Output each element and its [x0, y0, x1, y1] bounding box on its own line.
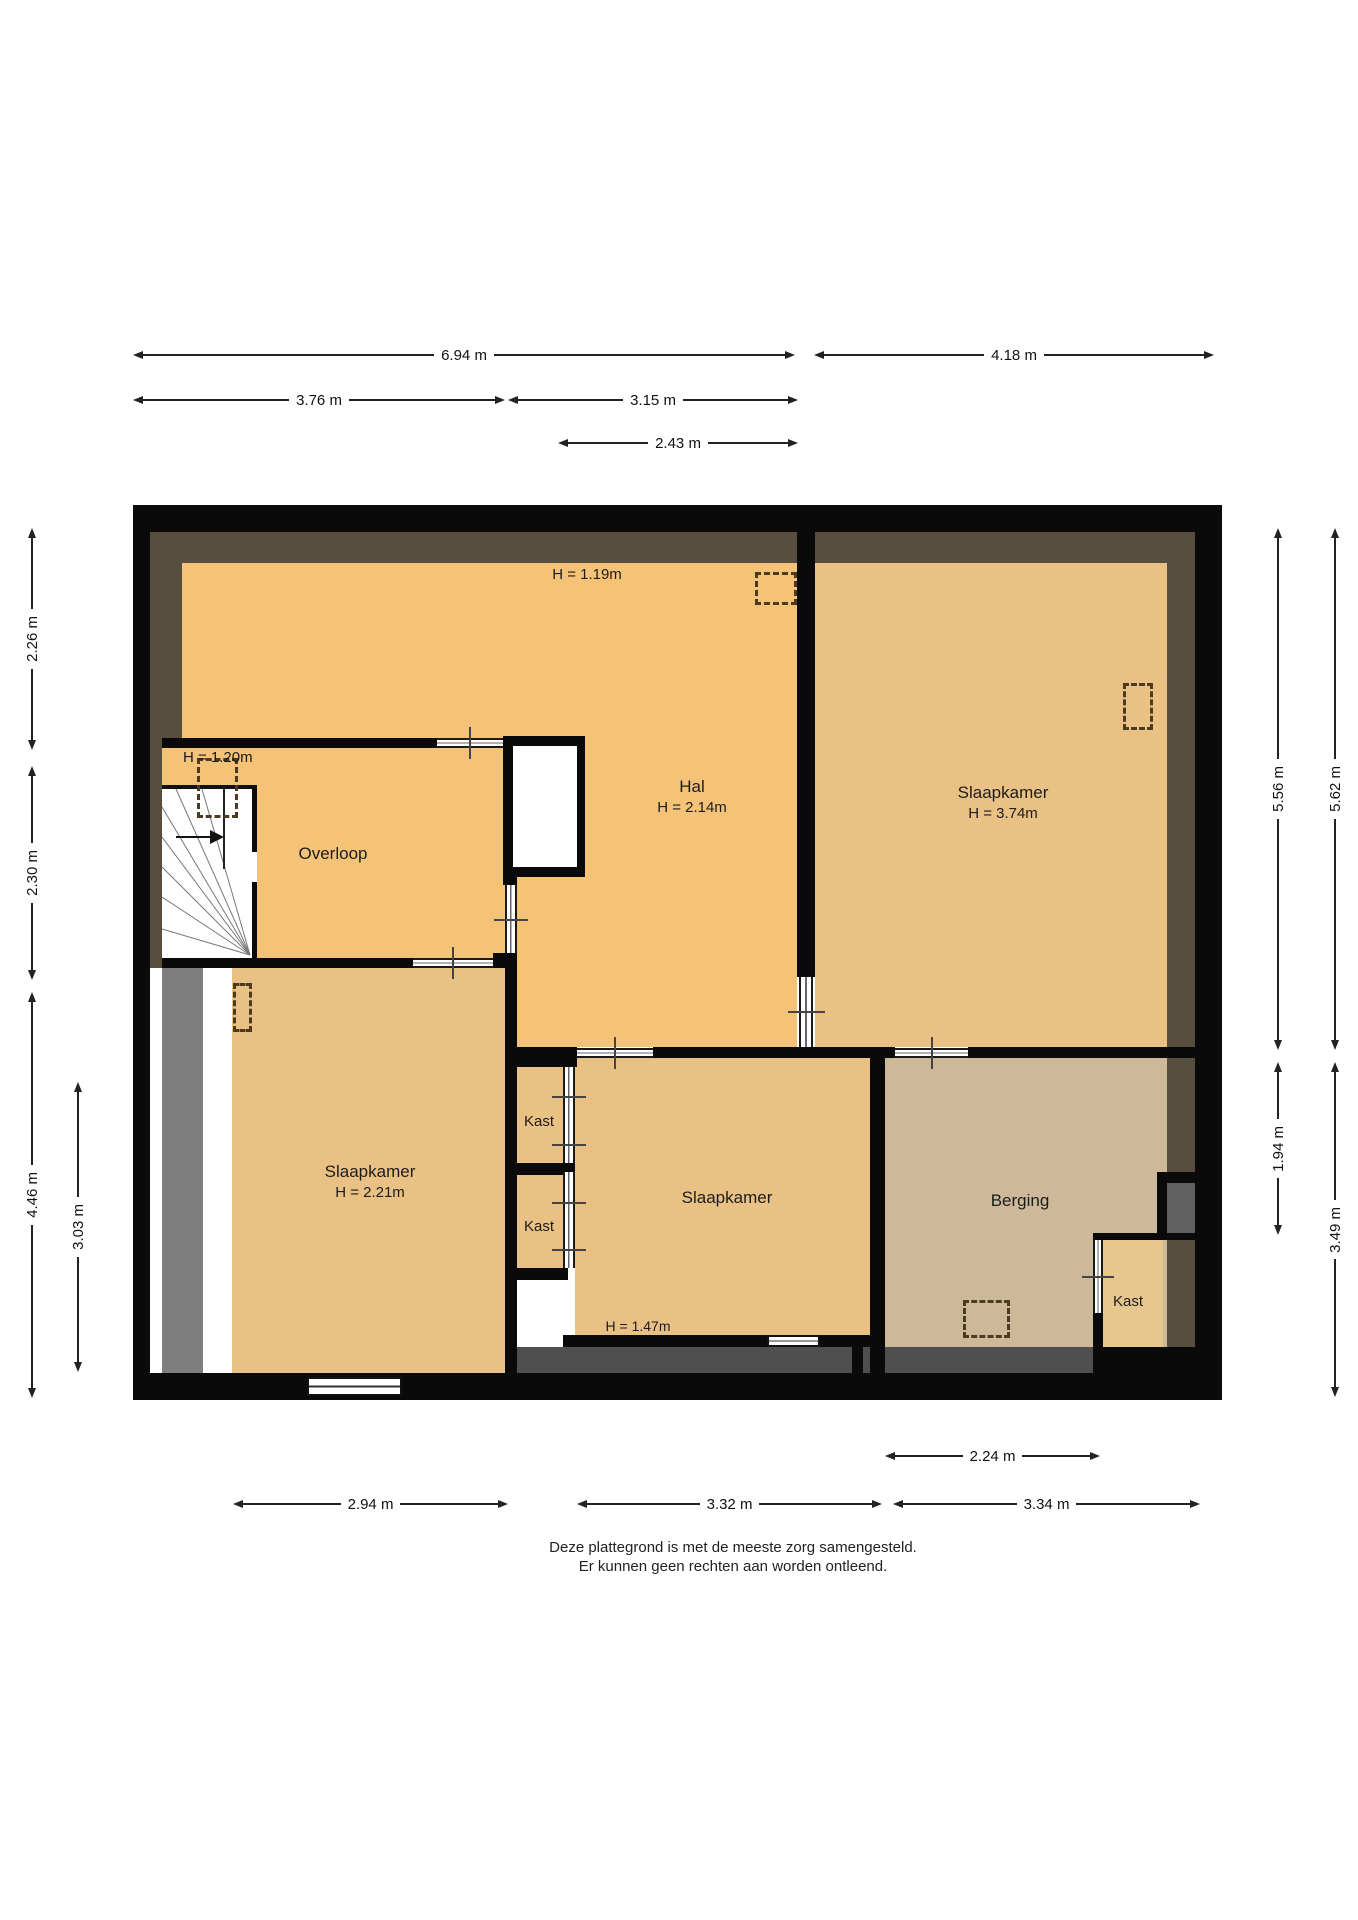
arrowhead-icon — [508, 396, 518, 404]
roof-band-top — [162, 532, 1195, 563]
room-label-berging: Berging — [991, 1191, 1050, 1211]
dimension-right-bottom: 3.49 m — [1327, 1062, 1343, 1397]
opening-tick — [552, 1249, 586, 1251]
room-height-slaapkamer-rechts: H = 3.74m — [968, 805, 1038, 822]
arrowhead-icon — [577, 1500, 587, 1508]
window-bottom-outer — [307, 1377, 402, 1396]
arrowhead-icon — [885, 1452, 895, 1460]
skylight-slaapkamer-rechts — [1123, 683, 1153, 730]
dimension-bottom-middle: 3.32 m — [577, 1496, 882, 1512]
white-notch-under-kast — [517, 1280, 563, 1347]
dimension-label: 3.03 m — [70, 1197, 87, 1257]
wall-corner-bottom-right — [1093, 1347, 1222, 1400]
dimension-label: 3.15 m — [623, 392, 683, 409]
dimension-label: 3.34 m — [1017, 1496, 1077, 1513]
arrowhead-icon — [495, 396, 505, 404]
dimension-bottom-berging: 2.24 m — [885, 1448, 1100, 1464]
gray-inset-right — [1167, 1183, 1195, 1233]
disclaimer: Deze plattegrond is met de meeste zorg s… — [433, 1538, 1033, 1576]
opening-tick — [494, 919, 528, 921]
room-label-hal: Hal — [679, 777, 705, 797]
dimension-bottom-right: 3.34 m — [893, 1496, 1200, 1512]
opening-tick — [614, 1037, 616, 1069]
arrowhead-icon — [1190, 1500, 1200, 1508]
opening-tick — [552, 1096, 586, 1098]
door-kast-2 — [563, 1172, 575, 1268]
arrowhead-icon — [1274, 1062, 1282, 1072]
wall-hal-slaapkamer-rechts — [797, 532, 815, 977]
gray-strip-left — [162, 968, 203, 1373]
arrowhead-icon — [814, 351, 824, 359]
arrowhead-icon — [28, 528, 36, 538]
shaft-void — [513, 746, 577, 867]
dimension-top-overloop: 3.76 m — [133, 392, 505, 408]
outer-wall-right — [1195, 505, 1222, 1400]
wall-under-hal — [653, 1047, 895, 1058]
arrowhead-icon — [28, 992, 36, 1002]
roof-band-left-lower — [150, 748, 162, 968]
room-label-kast-1: Kast — [524, 1113, 554, 1130]
arrowhead-icon — [1331, 1062, 1339, 1072]
arrowhead-icon — [1204, 351, 1214, 359]
room-fill-attic-zone — [182, 563, 797, 748]
note-low-ceiling: H = 1.47m — [606, 1318, 671, 1334]
arrowhead-icon — [785, 351, 795, 359]
wall-overloop-top — [162, 738, 437, 748]
arrowhead-icon — [893, 1500, 903, 1508]
wall-kast-bottom-stub — [505, 1268, 568, 1280]
dimension-top-total-left: 6.94 m — [133, 347, 795, 363]
dimension-left-top: 2.26 m — [24, 528, 40, 750]
arrowhead-icon — [28, 1388, 36, 1398]
skylight-slaapkamer-links — [233, 983, 252, 1032]
wall-midden-berging — [870, 1047, 885, 1373]
dimension-left-bottom: 4.46 m — [24, 992, 40, 1398]
roof-band-left — [150, 532, 182, 748]
dimension-left-middle: 2.30 m — [24, 766, 40, 980]
arrowhead-icon — [1090, 1452, 1100, 1460]
arrowhead-icon — [28, 766, 36, 776]
dimension-label: 2.26 m — [24, 609, 41, 669]
dimension-right-top-outer: 5.62 m — [1327, 528, 1343, 1050]
dimension-label: 5.56 m — [1270, 759, 1287, 819]
door-kast-1 — [563, 1067, 575, 1163]
arrowhead-icon — [788, 439, 798, 447]
arrowhead-icon — [74, 1362, 82, 1372]
wall-kast-column-left — [505, 953, 517, 1373]
note-stair-height: H = 1.20m — [183, 749, 253, 766]
gray-strip-bottom-middle — [517, 1347, 852, 1373]
disclaimer-line-1: Deze plattegrond is met de meeste zorg s… — [433, 1538, 1033, 1557]
stair-right-notch — [252, 852, 257, 882]
skylight-berging — [963, 1300, 1010, 1338]
room-label-kast-rechts: Kast — [1113, 1293, 1143, 1310]
wall-kast-rechts-door-stub — [1093, 1313, 1103, 1347]
note-attic-height: H = 1.19m — [552, 566, 622, 583]
arrowhead-icon — [1274, 1040, 1282, 1050]
room-height-slaapkamer-links: H = 2.21m — [335, 1184, 405, 1201]
opening-tick — [788, 1011, 825, 1013]
arrowhead-icon — [498, 1500, 508, 1508]
dimension-label: 3.49 m — [1327, 1200, 1344, 1260]
opening-tick — [552, 1144, 586, 1146]
opening-tick — [1082, 1276, 1114, 1278]
arrowhead-icon — [1331, 1040, 1339, 1050]
dimension-label: 2.24 m — [963, 1448, 1023, 1465]
wall-kast-rechts-top — [1093, 1233, 1195, 1240]
dimension-top-hal: 3.15 m — [508, 392, 798, 408]
dimension-right-berging: 1.94 m — [1270, 1062, 1286, 1235]
skylight-hal — [755, 572, 797, 605]
floorplan-page: H = 1.19m H = 1.20m Overloop Hal H = 2.1… — [0, 0, 1358, 1920]
dormer-overloop — [197, 758, 238, 818]
arrowhead-icon — [1331, 1387, 1339, 1397]
arrowhead-icon — [28, 970, 36, 980]
dimension-label: 3.32 m — [700, 1496, 760, 1513]
wall-overloop-bottom — [162, 958, 413, 968]
dimension-label: 4.18 m — [984, 347, 1044, 364]
arrowhead-icon — [1274, 528, 1282, 538]
room-label-slaapkamer-links: Slaapkamer — [325, 1162, 416, 1182]
opening-tick — [931, 1037, 933, 1069]
wall-right-notch-vertical — [1157, 1172, 1167, 1240]
dimension-label: 4.46 m — [24, 1165, 41, 1225]
dimension-label: 6.94 m — [434, 347, 494, 364]
dimension-bottom-left: 2.94 m — [233, 1496, 508, 1512]
arrowhead-icon — [872, 1500, 882, 1508]
arrowhead-icon — [28, 740, 36, 750]
outer-wall-left — [133, 505, 150, 1400]
disclaimer-line-2: Er kunnen geen rechten aan worden ontlee… — [433, 1557, 1033, 1576]
arrowhead-icon — [1331, 528, 1339, 538]
room-height-hal: H = 2.14m — [657, 799, 727, 816]
outer-wall-top — [133, 505, 1222, 532]
dimension-label: 1.94 m — [1270, 1119, 1287, 1179]
arrowhead-icon — [558, 439, 568, 447]
arrowhead-icon — [233, 1500, 243, 1508]
dimension-label: 2.43 m — [648, 435, 708, 452]
room-label-slaapkamer-midden: Slaapkamer — [682, 1188, 773, 1208]
white-gap-left — [203, 968, 232, 1373]
opening-tick — [552, 1202, 586, 1204]
arrowhead-icon — [133, 351, 143, 359]
room-label-kast-2: Kast — [524, 1218, 554, 1235]
dimension-right-top-inner: 5.56 m — [1270, 528, 1286, 1050]
dimension-label: 2.94 m — [341, 1496, 401, 1513]
dimension-label: 3.76 m — [289, 392, 349, 409]
wall-slaapkamer-midden-bottom — [563, 1335, 870, 1347]
dimension-label: 2.30 m — [24, 843, 41, 903]
dimension-label: 5.62 m — [1327, 759, 1344, 819]
arrowhead-icon — [788, 396, 798, 404]
room-label-slaapkamer-rechts: Slaapkamer — [958, 783, 1049, 803]
arrowhead-icon — [74, 1082, 82, 1092]
arrowhead-icon — [1274, 1225, 1282, 1235]
outer-wall-bottom — [133, 1373, 1222, 1400]
arrowhead-icon — [133, 396, 143, 404]
dimension-top-total-right: 4.18 m — [814, 347, 1214, 363]
wall-between-gray-strips — [852, 1347, 863, 1373]
window-slaapkamer-midden — [767, 1335, 820, 1347]
opening-tick — [452, 947, 454, 979]
dimension-top-hal-inner: 2.43 m — [558, 435, 798, 451]
wall-under-slaapkamer-rechts — [968, 1047, 1195, 1058]
gray-strip-bottom-berging — [863, 1347, 1093, 1373]
wall-kast-header — [505, 1047, 577, 1067]
opening-tick — [469, 727, 471, 759]
dimension-left-inner: 3.03 m — [70, 1082, 86, 1372]
room-label-overloop: Overloop — [299, 844, 368, 864]
